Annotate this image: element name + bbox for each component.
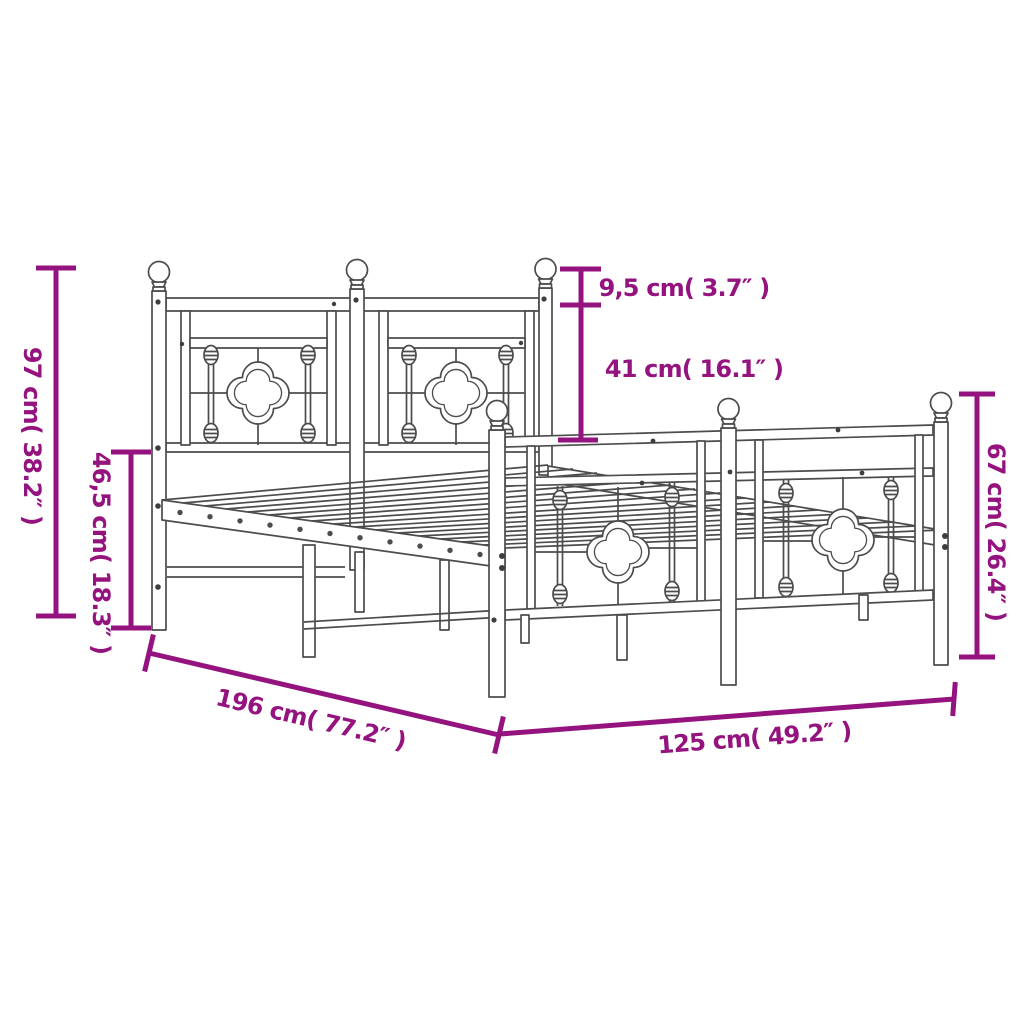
dimension-diagram: 97 cm( 38.2″ ) 46,5 cm( 18.3″ ) 9,5 cm( … [0, 0, 1024, 1024]
support-leg [303, 545, 315, 657]
headboard-post-right [539, 288, 552, 475]
support-leg [355, 552, 364, 612]
dimension-label-headboard-panel-height: 41 cm( 16.1″ ) [605, 355, 783, 383]
footboard-post-middle [721, 428, 736, 685]
footboard-top-rail [505, 425, 933, 447]
dimension-base-height [111, 452, 151, 628]
under-frame-brace [304, 610, 503, 629]
dimension-label-frame-length: 196 cm( 77.2″ ) [213, 683, 408, 755]
headboard-panel-left [181, 311, 336, 445]
finial-ball-icon [931, 393, 952, 423]
dimension-label-footboard-height: 67 cm( 26.4″ ) [982, 443, 1010, 621]
finial-ball-icon [149, 262, 170, 292]
slat-base [162, 465, 941, 657]
footboard-post-near [489, 430, 505, 697]
finial-ball-icon [347, 260, 368, 290]
dimension-label-headboard-height: 97 cm( 38.2″ ) [18, 347, 46, 525]
footboard-post-far [934, 422, 948, 665]
dimension-label-frame-width: 125 cm( 49.2″ ) [656, 717, 852, 760]
dimension-label-base-height: 46,5 cm( 18.3″ ) [87, 452, 115, 655]
footboard [487, 393, 952, 698]
quatrefoil-ornament [587, 521, 649, 583]
finial-ball-icon [718, 399, 739, 429]
finial-ball-icon [535, 259, 556, 289]
headboard-post-left [152, 291, 166, 630]
headboard-stretcher [167, 567, 345, 577]
bed-frame-drawing [149, 259, 952, 698]
headboard-panel-right [379, 311, 534, 445]
dimension-label-finial-height: 9,5 cm( 3.7″ ) [599, 274, 770, 302]
dimension-finial-and-panel [558, 269, 601, 440]
